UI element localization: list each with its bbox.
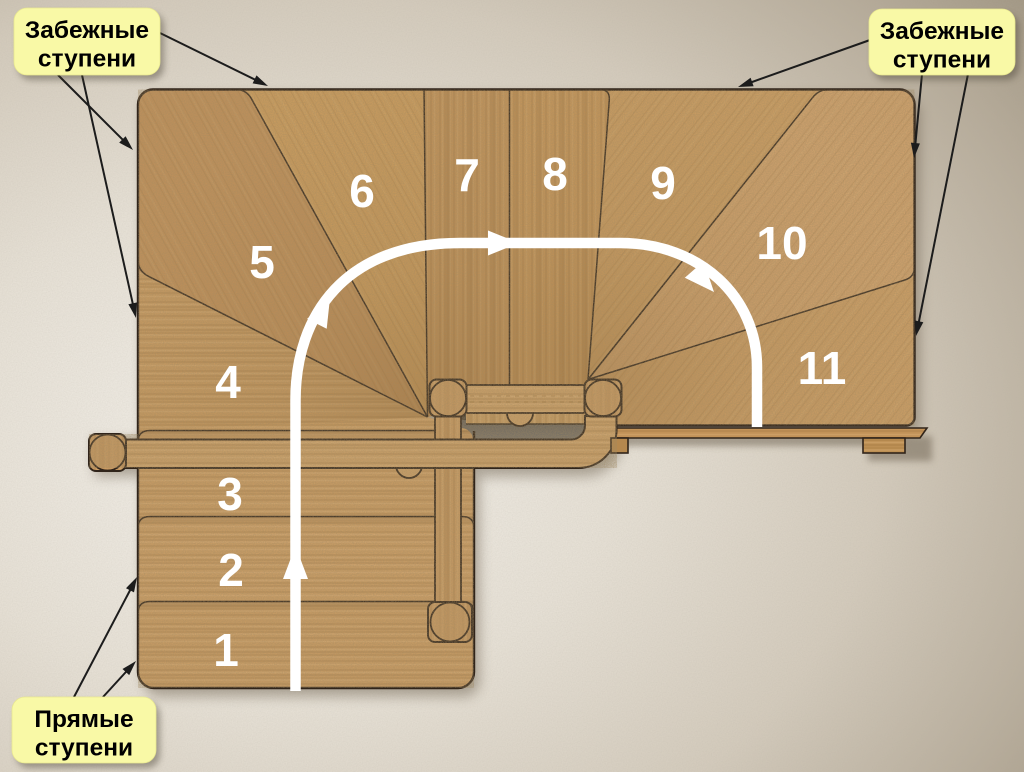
svg-text:Забежные: Забежные	[25, 17, 149, 44]
svg-text:3: 3	[217, 468, 243, 520]
svg-text:Забежные: Забежные	[880, 18, 1004, 45]
svg-text:4: 4	[215, 356, 241, 408]
svg-text:5: 5	[249, 236, 275, 288]
svg-text:2: 2	[218, 544, 244, 596]
svg-text:11: 11	[798, 342, 847, 394]
svg-text:7: 7	[454, 149, 480, 201]
svg-text:8: 8	[542, 148, 568, 200]
svg-text:ступени: ступени	[38, 46, 136, 73]
svg-text:ступени: ступени	[35, 735, 133, 762]
svg-text:10: 10	[756, 217, 807, 269]
svg-text:ступени: ступени	[893, 47, 991, 74]
svg-text:6: 6	[349, 165, 375, 217]
svg-text:9: 9	[650, 157, 676, 209]
svg-text:Прямые: Прямые	[34, 706, 133, 733]
svg-text:1: 1	[213, 624, 239, 676]
